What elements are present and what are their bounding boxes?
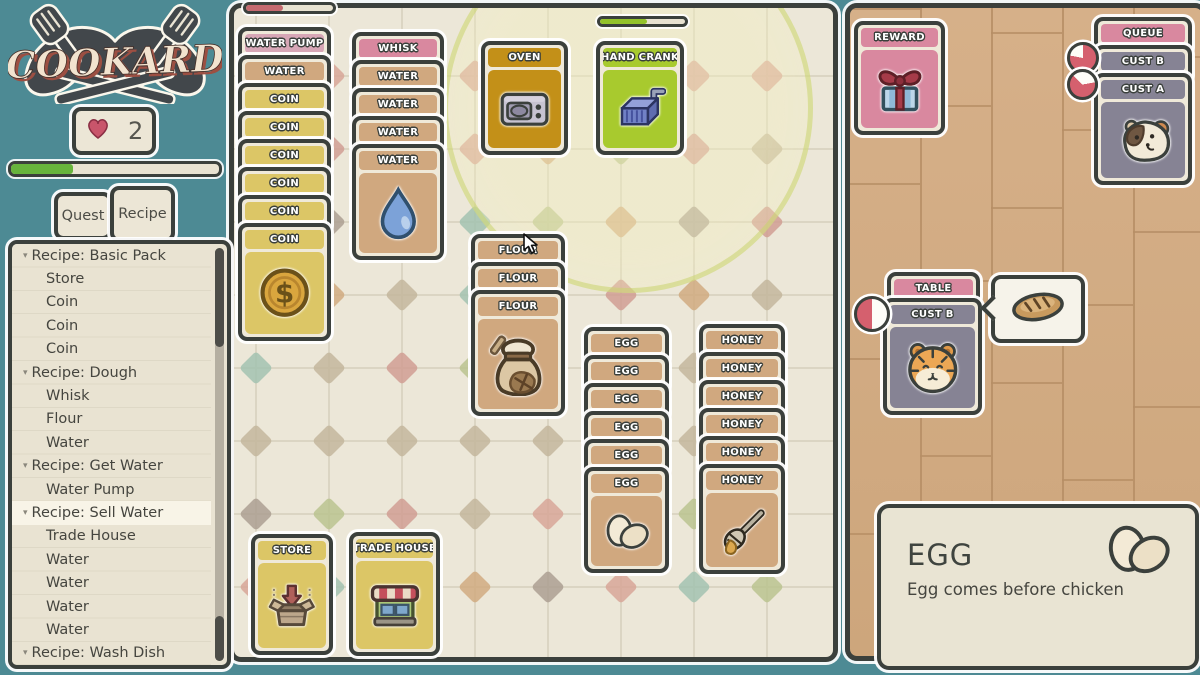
recipe-row-label: Store — [46, 271, 84, 287]
recipe-row-label: Recipe: Basic Pack — [32, 248, 166, 264]
recipe-item-row: Water Pump — [12, 478, 211, 501]
order-bubble — [991, 275, 1085, 343]
recipe-list-panel: ▾Recipe: Basic PackStoreCoinCoinCoin▾Rec… — [8, 240, 231, 669]
mouse-cursor — [522, 233, 539, 259]
recipe-item-row: Store — [12, 267, 211, 290]
recipe-row-label: Recipe: Dough — [32, 365, 138, 381]
collapse-caret-icon: ▾ — [23, 368, 28, 378]
recipe-row-label: Recipe: Sell Water — [32, 505, 164, 521]
recipe-row-label: Recipe: Wash Dish — [32, 645, 166, 661]
recipe-row-label: Coin — [46, 294, 78, 310]
scrollbar-thumb[interactable] — [215, 616, 224, 661]
recipe-row-label: Flour — [46, 411, 82, 427]
eggs-icon — [1096, 516, 1180, 582]
recipe-item-row: Water — [12, 548, 211, 571]
xp-progress-bar — [8, 161, 222, 177]
recipe-row-label: Water — [46, 435, 89, 451]
recipe-group-row[interactable]: ▾Recipe: Dough — [12, 361, 211, 384]
tab-quest[interactable]: Quest — [54, 192, 112, 240]
recipe-row-label: Recipe: Get Water — [32, 458, 163, 474]
heart-icon — [85, 117, 111, 145]
recipe-item-row: Trade House — [12, 525, 211, 548]
recipe-item-row: Water — [12, 431, 211, 454]
collapse-caret-icon: ▾ — [23, 251, 28, 261]
recipe-row-label: Whisk — [46, 388, 90, 404]
bread-icon — [1009, 289, 1067, 329]
info-description: Egg comes before chicken — [907, 580, 1124, 599]
collapse-caret-icon: ▾ — [23, 508, 28, 518]
tab-recipe[interactable]: Recipe — [110, 186, 175, 242]
scrollbar[interactable] — [215, 248, 224, 661]
recipe-item-row: Coin — [12, 291, 211, 314]
collapse-caret-icon: ▾ — [23, 648, 28, 658]
recipe-row-label: Water — [46, 599, 89, 615]
recipe-row-label: Water — [46, 622, 89, 638]
recipe-item-row: Water — [12, 571, 211, 594]
cookard-logo: COOKARD COOKARD — [8, 2, 222, 104]
game-screen: COOKARD COOKARD 2 Quest Recipe ▾Recipe: … — [0, 0, 1200, 675]
recipe-row-label: Water — [46, 552, 89, 568]
recipe-row-label: Water — [46, 575, 89, 591]
card-info-panel: EGG Egg comes before chicken — [877, 504, 1199, 670]
recipe-group-row[interactable]: ▾Recipe: Get Water — [12, 455, 211, 478]
recipe-group-row[interactable]: ▾Recipe: Sell Water — [12, 501, 211, 524]
recipe-group-row[interactable]: ▾Recipe: Basic Pack — [12, 244, 211, 267]
lives-value: 2 — [128, 117, 143, 145]
recipe-item-row: Water — [12, 618, 211, 641]
recipe-item-row: Whisk — [12, 384, 211, 407]
recipe-row-label: Water Pump — [46, 482, 134, 498]
scrollbar-thumb[interactable] — [215, 248, 224, 347]
recipe-item-row: Flour — [12, 408, 211, 431]
recipe-row-label: Coin — [46, 318, 78, 334]
recipe-row-label: Trade House — [46, 528, 136, 544]
svg-text:COOKARD: COOKARD — [8, 36, 222, 88]
play-area-panel — [229, 3, 838, 662]
lives-counter: 2 — [72, 107, 156, 155]
collapse-caret-icon: ▾ — [23, 461, 28, 471]
recipe-item-row: Coin — [12, 338, 211, 361]
recipe-group-row[interactable]: ▾Recipe: Wash Dish — [12, 642, 211, 665]
recipe-row-label: Coin — [46, 341, 78, 357]
info-title: EGG — [907, 538, 973, 572]
recipe-item-row: Water — [12, 595, 211, 618]
recipe-item-row: Coin — [12, 314, 211, 337]
sidebar: COOKARD COOKARD 2 Quest Recipe ▾Recipe: … — [0, 0, 230, 675]
